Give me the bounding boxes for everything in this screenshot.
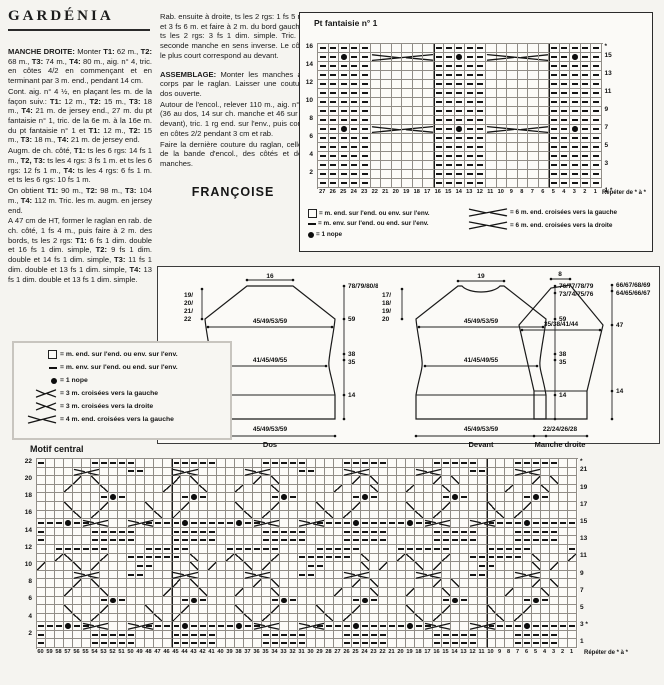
- chart-cell: [507, 44, 518, 53]
- chart-cell: [262, 562, 271, 571]
- chart-cell: [568, 622, 577, 631]
- chart-cell: [465, 107, 476, 116]
- chart-cell: [307, 493, 316, 502]
- column-number: 54: [90, 649, 99, 655]
- chart-cell: [505, 562, 514, 571]
- chart-cell: [55, 631, 64, 640]
- chart-cell: [271, 519, 280, 528]
- chart-cell: [478, 639, 487, 648]
- chart-cell: [253, 605, 262, 614]
- chart-cell: [37, 588, 46, 597]
- legend-text: = 1 nope: [60, 377, 88, 384]
- chart-cell: [136, 476, 145, 485]
- chart-cell: [402, 62, 413, 71]
- row-number: 8: [297, 115, 313, 122]
- chart-cell: [334, 554, 343, 563]
- chart-cell: [570, 134, 581, 143]
- chart-cell: [388, 545, 397, 554]
- svg-text:35: 35: [348, 359, 356, 366]
- chart-cell: [460, 519, 469, 528]
- chart-cell: [307, 476, 316, 485]
- chart-cell: [145, 519, 154, 528]
- chart-cell: [145, 536, 154, 545]
- chart-cell: [433, 545, 442, 554]
- chart-cell: [591, 134, 602, 143]
- chart-cell: [316, 622, 325, 631]
- svg-text:21/: 21/: [184, 308, 193, 315]
- chart-cell: [109, 554, 118, 563]
- column-number: 38: [234, 649, 243, 655]
- chart-cell: [455, 62, 466, 71]
- chart-cell: [388, 536, 397, 545]
- chart-cell: [46, 459, 55, 468]
- chart-cell: [316, 588, 325, 597]
- chart-cell: [514, 545, 523, 554]
- chart-cell: [289, 493, 298, 502]
- chart-cell: [55, 579, 64, 588]
- chart-cell: [91, 528, 100, 537]
- chart-cell: [82, 485, 91, 494]
- chart-cell: [163, 511, 172, 520]
- chart-cell: [325, 536, 334, 545]
- chart-cell: [379, 631, 388, 640]
- chart-cell: [497, 53, 508, 62]
- chart-cell: [550, 631, 559, 640]
- chart-cell: [581, 143, 592, 152]
- pt-fantaisie-panel: Pt fantaisie n° 1 2726252423222120191817…: [299, 12, 653, 252]
- chart-cell: [163, 579, 172, 588]
- chart-cell: [392, 89, 403, 98]
- chart-cell: [339, 98, 350, 107]
- chart-cell: [532, 579, 541, 588]
- chart-cell: [307, 468, 316, 477]
- chart-cell: [64, 511, 73, 520]
- chart-cell: [118, 588, 127, 597]
- chart-cell: [397, 588, 406, 597]
- column-number: 58: [54, 649, 63, 655]
- chart-cell: [136, 459, 145, 468]
- chart-cell: [163, 631, 172, 640]
- column-number: 4: [559, 189, 570, 195]
- chart-cell: [451, 459, 460, 468]
- chart-cell: [568, 614, 577, 623]
- chart-cell: [181, 536, 190, 545]
- chart-cell: [568, 485, 577, 494]
- chart-cell: [451, 502, 460, 511]
- chart-cell: [73, 536, 82, 545]
- chart-cell: [361, 588, 370, 597]
- chart-cell: [505, 579, 514, 588]
- chart-cell: [172, 614, 181, 623]
- chart-cell: [514, 639, 523, 648]
- chart-cell: [541, 545, 550, 554]
- chart-cell: [329, 44, 340, 53]
- chart-cell: [127, 528, 136, 537]
- row-number: 18: [16, 492, 32, 499]
- chart-cell: [82, 579, 91, 588]
- row-number: 11: [605, 88, 612, 95]
- chart-cell: [392, 116, 403, 125]
- chart2-repeat-label: Répéter de * à *: [584, 650, 628, 656]
- chart-cell: [444, 125, 455, 134]
- chart-cell: [507, 116, 518, 125]
- chart-cell: [82, 493, 91, 502]
- chart-cell: [476, 53, 487, 62]
- chart-cell: [415, 545, 424, 554]
- chart-cell: [486, 44, 497, 53]
- chart-cell: [136, 502, 145, 511]
- chart-cell: [280, 631, 289, 640]
- chart-cell: [371, 107, 382, 116]
- chart-cell: [406, 571, 415, 580]
- row-number: 5: [605, 142, 609, 149]
- chart-cell: [343, 536, 352, 545]
- bobble-dot-icon: [14, 378, 60, 384]
- chart-cell: [190, 614, 199, 623]
- chart-cell: [280, 519, 289, 528]
- chart-cell: [518, 161, 529, 170]
- chart-cell: [518, 179, 529, 188]
- chart-cell: [226, 536, 235, 545]
- chart-cell: [514, 579, 523, 588]
- chart-cell: [172, 519, 181, 528]
- chart-cell: [145, 528, 154, 537]
- row-number: 20: [16, 475, 32, 482]
- chart-cell: [478, 459, 487, 468]
- chart1-grid: [317, 43, 603, 189]
- chart-cell: [163, 554, 172, 563]
- chart-cell: [73, 528, 82, 537]
- chart-cell: [208, 468, 217, 477]
- chart-cell: [591, 116, 602, 125]
- chart-cell: [253, 528, 262, 537]
- chart-cell: [100, 622, 109, 631]
- chart-cell: [465, 125, 476, 134]
- chart-cell: [476, 152, 487, 161]
- chart-cell: [541, 631, 550, 640]
- chart-cell: [523, 493, 532, 502]
- chart-cell: [109, 614, 118, 623]
- paragraph: Cont. aig. n° 4 ½, en plaçant les m. de …: [8, 87, 152, 145]
- chart-cell: [339, 143, 350, 152]
- chart-cell: [507, 89, 518, 98]
- chart-cell: [415, 639, 424, 648]
- chart-cell: [352, 536, 361, 545]
- chart-cell: [486, 134, 497, 143]
- chart-cell: [539, 116, 550, 125]
- chart-cell: [476, 179, 487, 188]
- chart-cell: [476, 62, 487, 71]
- chart-cell: [361, 597, 370, 606]
- chart-cell: [392, 179, 403, 188]
- chart-cell: [226, 631, 235, 640]
- chart-cell: [560, 170, 571, 179]
- chart-cell: [478, 545, 487, 554]
- chart-cell: [172, 459, 181, 468]
- chart-cell: [271, 571, 280, 580]
- chart-cell: [549, 80, 560, 89]
- chart-cell: [392, 80, 403, 89]
- chart-cell: [339, 125, 350, 134]
- chart-cell: [82, 545, 91, 554]
- chart-cell: [455, 44, 466, 53]
- chart-cell: [91, 605, 100, 614]
- svg-text:35/38/41/44: 35/38/41/44: [544, 321, 579, 328]
- chart-cell: [455, 89, 466, 98]
- chart-cell: [199, 459, 208, 468]
- chart-cell: [181, 631, 190, 640]
- chart-cell: [82, 614, 91, 623]
- chart-cell: [316, 485, 325, 494]
- chart-cell: [413, 107, 424, 116]
- chart-cell: [64, 459, 73, 468]
- chart-cell: [424, 459, 433, 468]
- chart-cell: [478, 622, 487, 631]
- chart-cell: [402, 152, 413, 161]
- chart-cell: [127, 511, 136, 520]
- chart-cell: [325, 528, 334, 537]
- chart-cell: [339, 80, 350, 89]
- chart-cell: [496, 639, 505, 648]
- chart-cell: [55, 614, 64, 623]
- chart-cell: [334, 605, 343, 614]
- chart-cell: [199, 468, 208, 477]
- chart-cell: [46, 639, 55, 648]
- chart-cell: [307, 459, 316, 468]
- chart-cell: [507, 134, 518, 143]
- chart-cell: [433, 639, 442, 648]
- chart-cell: [199, 562, 208, 571]
- chart-cell: [514, 605, 523, 614]
- chart-cell: [514, 511, 523, 520]
- chart-cell: [253, 536, 262, 545]
- chart-cell: [343, 493, 352, 502]
- chart-cell: [190, 459, 199, 468]
- chart-cell: [591, 53, 602, 62]
- chart-cell: [388, 597, 397, 606]
- chart-cell: [334, 588, 343, 597]
- chart-cell: [343, 476, 352, 485]
- chart-cell: [568, 545, 577, 554]
- chart-cell: [434, 62, 445, 71]
- chart-cell: [298, 536, 307, 545]
- chart-cell: [433, 459, 442, 468]
- row-number: 3: [605, 160, 609, 167]
- chart-cell: [478, 554, 487, 563]
- chart-cell: [100, 631, 109, 640]
- chart-cell: [433, 528, 442, 537]
- chart-cell: [244, 579, 253, 588]
- chart-cell: [289, 519, 298, 528]
- column-number: 5: [548, 189, 559, 195]
- chart-cell: [370, 571, 379, 580]
- chart-cell: [208, 588, 217, 597]
- column-number: 8: [504, 649, 513, 655]
- chart-cell: [64, 588, 73, 597]
- chart-cell: [244, 459, 253, 468]
- chart-cell: [487, 545, 496, 554]
- chart-cell: [532, 614, 541, 623]
- chart-cell: [289, 485, 298, 494]
- chart-cell: [334, 476, 343, 485]
- chart-cell: [343, 519, 352, 528]
- chart-cell: [127, 562, 136, 571]
- chart-cell: [361, 614, 370, 623]
- chart-cell: [442, 554, 451, 563]
- chart-cell: [100, 588, 109, 597]
- chart-cell: [550, 571, 559, 580]
- cable-right-icon: [468, 220, 508, 231]
- chart-cell: [226, 485, 235, 494]
- chart-cell: [329, 116, 340, 125]
- chart-cell: [217, 605, 226, 614]
- chart-cell: [100, 493, 109, 502]
- chart-cell: [560, 62, 571, 71]
- chart-cell: [550, 459, 559, 468]
- legend-item: = m. end. sur l'end. ou env. sur l'env.: [308, 209, 430, 218]
- chart-cell: [91, 502, 100, 511]
- chart-cell: [397, 571, 406, 580]
- chart-cell: [100, 528, 109, 537]
- row-number: 2: [16, 630, 32, 637]
- chart-cell: [370, 605, 379, 614]
- chart-cell: [379, 588, 388, 597]
- chart-cell: [190, 545, 199, 554]
- chart-cell: [478, 579, 487, 588]
- chart-cell: [550, 605, 559, 614]
- paragraph: On obtient T1: 90 m., T2: 98 m., T3: 104…: [8, 186, 152, 215]
- chart-cell: [172, 502, 181, 511]
- chart-cell: [190, 639, 199, 648]
- chart-cell: [145, 614, 154, 623]
- chart-cell: [339, 44, 350, 53]
- chart-cell: [442, 579, 451, 588]
- chart-cell: [181, 614, 190, 623]
- chart-cell: [46, 614, 55, 623]
- chart-cell: [423, 80, 434, 89]
- chart-cell: [424, 468, 433, 477]
- legend-text: = 6 m. end. croisées vers la droite: [510, 222, 612, 229]
- chart-cell: [402, 125, 413, 134]
- chart-cell: [444, 53, 455, 62]
- chart-cell: [539, 107, 550, 116]
- chart-cell: [190, 528, 199, 537]
- chart-cell: [360, 80, 371, 89]
- chart-cell: [402, 98, 413, 107]
- chart-cell: [487, 476, 496, 485]
- legend-text: = m. env. sur l'end. ou end. sur l'env.: [318, 220, 429, 227]
- chart-cell: [442, 631, 451, 640]
- chart-cell: [434, 134, 445, 143]
- chart-cell: [244, 622, 253, 631]
- chart-cell: [451, 485, 460, 494]
- chart-cell: [442, 605, 451, 614]
- chart-cell: [339, 134, 350, 143]
- chart-cell: [181, 476, 190, 485]
- chart-cell: [434, 107, 445, 116]
- chart-cell: [55, 597, 64, 606]
- chart-cell: [145, 511, 154, 520]
- chart-cell: [433, 536, 442, 545]
- chart-cell: [298, 468, 307, 477]
- column-number: 19: [401, 189, 412, 195]
- chart-cell: [424, 571, 433, 580]
- chart-cell: [581, 98, 592, 107]
- chart-cell: [352, 562, 361, 571]
- chart-cell: [406, 468, 415, 477]
- chart-cell: [318, 134, 329, 143]
- chart-cell: [496, 545, 505, 554]
- chart-cell: [406, 502, 415, 511]
- chart-cell: [37, 622, 46, 631]
- chart-cell: [127, 536, 136, 545]
- legend-text: = 1 nope: [316, 231, 342, 238]
- chart-cell: [514, 536, 523, 545]
- chart-cell: [541, 588, 550, 597]
- chart-cell: [318, 53, 329, 62]
- chart-cell: [163, 605, 172, 614]
- chart-cell: [64, 639, 73, 648]
- chart-cell: [406, 562, 415, 571]
- chart-cell: [226, 614, 235, 623]
- chart-cell: [550, 476, 559, 485]
- chart-cell: [388, 528, 397, 537]
- chart-cell: [560, 161, 571, 170]
- chart-cell: [559, 639, 568, 648]
- chart-cell: [523, 605, 532, 614]
- legend-item: = 1 nope: [308, 231, 342, 238]
- chart-cell: [433, 605, 442, 614]
- chart-cell: [190, 571, 199, 580]
- chart-cell: [455, 107, 466, 116]
- chart-cell: [460, 631, 469, 640]
- chart-cell: [91, 485, 100, 494]
- chart-cell: [460, 605, 469, 614]
- chart-cell: [334, 597, 343, 606]
- chart-cell: [434, 53, 445, 62]
- chart-cell: [289, 536, 298, 545]
- chart-cell: [496, 519, 505, 528]
- chart-cell: [370, 536, 379, 545]
- chart-cell: [541, 554, 550, 563]
- paragraph: Augm. de ch. côté, T1: ts les 6 rgs: 14 …: [8, 146, 152, 185]
- chart-cell: [442, 571, 451, 580]
- chart-cell: [528, 89, 539, 98]
- chart-cell: [154, 519, 163, 528]
- chart-cell: [109, 605, 118, 614]
- chart-cell: [109, 459, 118, 468]
- row-number: 12: [297, 79, 313, 86]
- chart-cell: [329, 62, 340, 71]
- chart-cell: [307, 631, 316, 640]
- chart-cell: [518, 71, 529, 80]
- chart-cell: [518, 53, 529, 62]
- paragraph: Rab. ensuite à droite, ts les 2 rgs: 1 f…: [160, 12, 306, 61]
- chart-cell: [560, 53, 571, 62]
- chart-cell: [478, 493, 487, 502]
- chart-cell: [424, 528, 433, 537]
- chart-cell: [82, 562, 91, 571]
- chart-cell: [217, 485, 226, 494]
- chart-cell: [460, 476, 469, 485]
- chart-cell: [388, 631, 397, 640]
- chart-cell: [388, 511, 397, 520]
- chart-cell: [507, 71, 518, 80]
- chart-cell: [478, 502, 487, 511]
- svg-text:59: 59: [348, 316, 356, 323]
- chart-cell: [397, 631, 406, 640]
- row-number: 10: [16, 561, 32, 568]
